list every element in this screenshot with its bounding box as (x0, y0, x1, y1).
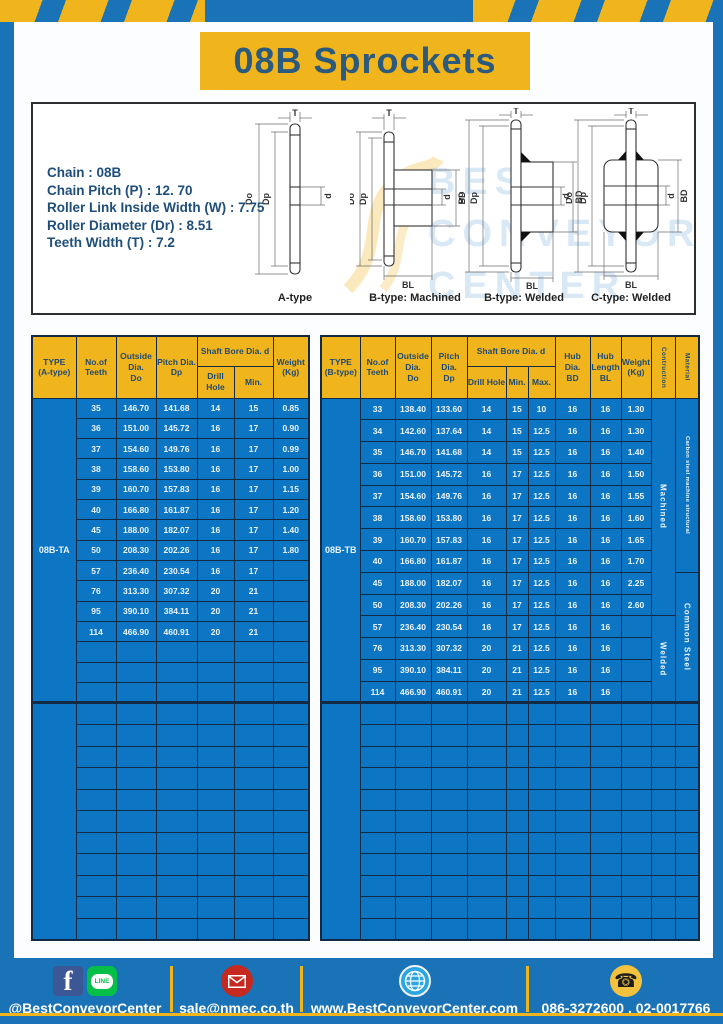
column-header: Contruction (651, 336, 675, 398)
table-cell: 95 (360, 659, 395, 681)
table-cell (156, 703, 197, 725)
table-cell: 21 (234, 581, 273, 601)
table-cell: 36 (360, 463, 395, 485)
table-cell (76, 683, 116, 703)
table-cell (395, 832, 431, 854)
table-cell (651, 918, 675, 940)
table-cell: 20 (197, 581, 234, 601)
table-cell (555, 789, 590, 811)
table-cell (528, 724, 555, 746)
table-cell: 12.5 (528, 572, 555, 594)
table-cell (651, 897, 675, 919)
table-cell (621, 875, 651, 897)
table-cell: 17 (234, 459, 273, 479)
table-cell: 16 (590, 485, 621, 507)
table-cell: 154.60 (395, 485, 431, 507)
table-cell (528, 746, 555, 768)
table-cell (555, 768, 590, 790)
column-header: Shaft Bore Dia. d (467, 336, 555, 366)
table-cell: 384.11 (156, 601, 197, 621)
line-badge: LINE (91, 974, 113, 989)
table-cell: 17 (506, 529, 528, 551)
table-cell: 16 (590, 594, 621, 616)
globe-icon[interactable] (399, 965, 431, 997)
table-cell (273, 601, 309, 621)
table-cell: 16 (467, 507, 506, 529)
table-cell (555, 897, 590, 919)
table-cell (116, 724, 156, 746)
column-header: Shaft Bore Dia. d (197, 336, 273, 366)
table-cell: 38 (76, 459, 116, 479)
table-cell: 16 (197, 520, 234, 540)
table-cell: 20 (467, 681, 506, 703)
table-cell (273, 789, 309, 811)
table-cell (360, 875, 395, 897)
table-cell (197, 811, 234, 833)
table-cell: 230.54 (431, 616, 467, 638)
table-cell (197, 662, 234, 682)
table-cell (621, 724, 651, 746)
table-row: 37154.60149.76161712.516161.55 (321, 485, 699, 507)
table-cell (621, 746, 651, 768)
table-cell (156, 854, 197, 876)
table-cell: 16 (197, 540, 234, 560)
table-cell (156, 662, 197, 682)
table-row (321, 897, 699, 919)
table-cell: 17 (234, 561, 273, 581)
table-cell: 16 (555, 442, 590, 464)
table-cell: 76 (360, 638, 395, 660)
table-cell: 20 (467, 659, 506, 681)
table-cell: 12.5 (528, 659, 555, 681)
table-cell (590, 811, 621, 833)
table-cell (651, 703, 675, 725)
table-cell: 1.55 (621, 485, 651, 507)
table-cell (651, 724, 675, 746)
table-cell: 158.60 (116, 459, 156, 479)
table-cell: 16 (590, 572, 621, 594)
column-header: Hub Length BL (590, 336, 621, 398)
table-cell: 14 (467, 442, 506, 464)
table-cell: 12.5 (528, 485, 555, 507)
table-cell: 17 (234, 520, 273, 540)
table-row (321, 854, 699, 876)
table-cell: 1.30 (621, 398, 651, 420)
table-cell: 16 (590, 550, 621, 572)
table-cell (395, 703, 431, 725)
table-cell: 12.5 (528, 442, 555, 464)
table-cell (590, 854, 621, 876)
table-cell (621, 789, 651, 811)
table-cell (506, 789, 528, 811)
table-cell (116, 642, 156, 662)
table-cell: 16 (590, 420, 621, 442)
table-cell (555, 724, 590, 746)
facebook-icon[interactable]: f (53, 966, 83, 996)
table-cell: 12.5 (528, 529, 555, 551)
table-cell (395, 918, 431, 940)
table-cell: 14 (467, 398, 506, 420)
table-a-type: TYPE (A-type)No.of TeethOutside Dia. DoP… (31, 335, 310, 941)
table-cell (467, 832, 506, 854)
table-cell: 460.91 (156, 622, 197, 642)
diagram-caption: A-type (230, 292, 360, 304)
table-cell: 20 (197, 622, 234, 642)
table-cell (621, 832, 651, 854)
table-cell: 17 (506, 572, 528, 594)
table-cell (528, 789, 555, 811)
table-cell: 390.10 (116, 601, 156, 621)
table-cell (234, 832, 273, 854)
table-cell (360, 768, 395, 790)
phone-icon[interactable]: ☎ (610, 965, 642, 997)
table-row: 34142.60137.64141512.516161.30 (321, 420, 699, 442)
table-cell: 236.40 (116, 561, 156, 581)
table-cell (467, 811, 506, 833)
table-cell: 149.76 (156, 439, 197, 459)
table-cell (555, 811, 590, 833)
catalog-page: 08B Sprockets BEST CONVEYOR CENTER Chain… (14, 22, 713, 958)
svg-text:T: T (386, 108, 392, 118)
table-cell: 0.99 (273, 439, 309, 459)
table-cell (621, 681, 651, 703)
table-cell (528, 918, 555, 940)
table-cell (675, 746, 699, 768)
table-cell: 17 (234, 439, 273, 459)
table-cell (431, 724, 467, 746)
table-cell: 2.25 (621, 572, 651, 594)
table-cell: 20 (197, 601, 234, 621)
column-header: Outside Dia. Do (395, 336, 431, 398)
table-cell (467, 789, 506, 811)
diagram-c-type-welded: T Do Dp d (566, 108, 696, 313)
table-cell: 16 (590, 681, 621, 703)
table-cell (621, 659, 651, 681)
table-cell (555, 746, 590, 768)
table-cell: 182.07 (156, 520, 197, 540)
spec-line: Roller Diameter (Dr) : 8.51 (47, 217, 264, 235)
table-cell (360, 724, 395, 746)
table-cell: 16 (197, 459, 234, 479)
table-cell: 166.80 (116, 500, 156, 520)
table-cell (273, 854, 309, 876)
table-cell: 1.60 (621, 507, 651, 529)
table-cell (651, 832, 675, 854)
table-cell: 16 (555, 463, 590, 485)
table-cell (651, 789, 675, 811)
table-cell: 17 (234, 500, 273, 520)
table-cell: 16 (590, 463, 621, 485)
table-cell: 16 (555, 550, 590, 572)
table-cell (156, 746, 197, 768)
svg-text:BL: BL (526, 281, 538, 290)
table-cell: 188.00 (116, 520, 156, 540)
table-cell (273, 875, 309, 897)
table-cell: 37 (360, 485, 395, 507)
table-cell: 39 (360, 529, 395, 551)
table-cell (675, 832, 699, 854)
table-cell: 12.5 (528, 616, 555, 638)
column-header: Pitch Dia. Dp (431, 336, 467, 398)
table-cell: 17 (506, 485, 528, 507)
table-cell (621, 897, 651, 919)
table-cell: 17 (506, 594, 528, 616)
table-cell (467, 918, 506, 940)
table-cell: 15 (506, 442, 528, 464)
table-cell (76, 746, 116, 768)
table-cell (431, 897, 467, 919)
table-cell: 12.5 (528, 463, 555, 485)
table-cell (197, 897, 234, 919)
table-row: 57236.40230.54161712.51616Welded (321, 616, 699, 638)
table-cell: 21 (234, 601, 273, 621)
table-cell: 137.64 (431, 420, 467, 442)
table-cell (651, 811, 675, 833)
table-cell: 145.72 (156, 418, 197, 438)
table-cell (651, 854, 675, 876)
table-cell (528, 854, 555, 876)
table-row: 45188.00182.07161712.516162.25Common Ste… (321, 572, 699, 594)
table-cell (431, 811, 467, 833)
table-cell (234, 918, 273, 940)
table-cell (197, 683, 234, 703)
chain-specs: Chain : 08B Chain Pitch (P) : 12. 70 Rol… (47, 164, 264, 252)
table-cell (431, 832, 467, 854)
type-cell (32, 703, 76, 940)
table-cell: 460.91 (431, 681, 467, 703)
table-cell (675, 789, 699, 811)
table-cell (197, 832, 234, 854)
table-cell (675, 811, 699, 833)
spec-line: Chain Pitch (P) : 12. 70 (47, 182, 264, 200)
table-cell: 38 (360, 507, 395, 529)
table-cell: 21 (234, 622, 273, 642)
table-cell (467, 703, 506, 725)
table-cell: 160.70 (116, 479, 156, 499)
svg-text:T: T (628, 108, 634, 116)
table-cell (621, 616, 651, 638)
table-cell: 466.90 (116, 622, 156, 642)
spec-line: Chain : 08B (47, 164, 264, 182)
table-cell: 151.00 (395, 463, 431, 485)
table-cell (555, 854, 590, 876)
material-cell: Carbon steel machine structural (675, 398, 699, 572)
column-header: TYPE (A-type) (32, 336, 76, 398)
table-cell (590, 832, 621, 854)
table-cell: 149.76 (431, 485, 467, 507)
table-cell: 16 (555, 659, 590, 681)
table-cell (590, 918, 621, 940)
table-cell (360, 918, 395, 940)
table-row (321, 875, 699, 897)
table-cell: 21 (506, 659, 528, 681)
table-cell (156, 642, 197, 662)
table-cell: 45 (360, 572, 395, 594)
table-cell: 153.80 (156, 459, 197, 479)
table-row (321, 832, 699, 854)
table-cell: 390.10 (395, 659, 431, 681)
material-cell: Common Steel (675, 572, 699, 703)
table-cell: 95 (76, 601, 116, 621)
table-cell: 15 (506, 420, 528, 442)
table-cell (273, 642, 309, 662)
table-cell (116, 703, 156, 725)
table-cell (156, 875, 197, 897)
mail-icon[interactable] (221, 965, 253, 997)
table-cell: 16 (555, 398, 590, 420)
table-cell: 17 (506, 616, 528, 638)
table-cell: 161.87 (156, 500, 197, 520)
table-cell (234, 746, 273, 768)
table-cell: 16 (590, 616, 621, 638)
table-cell (675, 897, 699, 919)
table-cell: 76 (76, 581, 116, 601)
table-cell: 45 (76, 520, 116, 540)
table-cell (116, 875, 156, 897)
svg-text:T: T (513, 108, 519, 116)
table-cell (360, 811, 395, 833)
table-cell (675, 724, 699, 746)
table-cell: 16 (590, 529, 621, 551)
table-cell (116, 854, 156, 876)
svg-text:Do: Do (566, 192, 574, 204)
table-cell: 16 (590, 442, 621, 464)
table-cell: 12.5 (528, 638, 555, 660)
line-icon[interactable]: LINE (87, 966, 117, 996)
table-cell (506, 897, 528, 919)
table-cell (234, 642, 273, 662)
table-cell (467, 768, 506, 790)
table-cell: 158.60 (395, 507, 431, 529)
table-cell (116, 832, 156, 854)
table-cell (76, 789, 116, 811)
table-cell: 188.00 (395, 572, 431, 594)
table-cell (234, 897, 273, 919)
table-cell (116, 746, 156, 768)
table-cell (431, 875, 467, 897)
table-cell (360, 703, 395, 725)
table-cell (506, 832, 528, 854)
table-cell (590, 789, 621, 811)
table-cell: 160.70 (395, 529, 431, 551)
svg-text:Dp: Dp (578, 192, 588, 204)
table-cell (116, 811, 156, 833)
table-cell (621, 811, 651, 833)
column-header: Pitch Dia. Dp (156, 336, 197, 398)
table-cell: 1.30 (621, 420, 651, 442)
table-cell (621, 638, 651, 660)
table-cell: 57 (360, 616, 395, 638)
table-cell (590, 703, 621, 725)
table-cell: 182.07 (431, 572, 467, 594)
table-cell (360, 897, 395, 919)
type-cell: 08B-TB (321, 398, 360, 703)
table-cell: 12.5 (528, 507, 555, 529)
table-cell (590, 875, 621, 897)
table-cell (234, 875, 273, 897)
table-cell (555, 703, 590, 725)
table-cell (156, 683, 197, 703)
table-cell (506, 724, 528, 746)
svg-text:d: d (666, 193, 676, 199)
table-cell (506, 768, 528, 790)
table-cell (76, 703, 116, 725)
table-cell (590, 897, 621, 919)
column-header: Min. (234, 366, 273, 398)
spec-table: TYPE (A-type)No.of TeethOutside Dia. DoP… (31, 335, 310, 941)
table-cell: 145.72 (431, 463, 467, 485)
table-cell: 146.70 (395, 442, 431, 464)
table-cell: 57 (76, 561, 116, 581)
spec-table: TYPE (B-type)No.of TeethOutside Dia. DoP… (320, 335, 700, 941)
footer-accent-line (0, 1013, 723, 1016)
table-cell (156, 724, 197, 746)
table-cell (555, 918, 590, 940)
table-cell: 17 (234, 540, 273, 560)
page-title-banner: 08B Sprockets (200, 32, 530, 90)
table-cell (273, 561, 309, 581)
table-cell: 1.15 (273, 479, 309, 499)
table-cell: 16 (555, 681, 590, 703)
table-cell: 37 (76, 439, 116, 459)
table-cell (76, 768, 116, 790)
table-cell (76, 897, 116, 919)
table-cell (467, 746, 506, 768)
table-cell (431, 703, 467, 725)
table-cell: 16 (555, 594, 590, 616)
table-cell (234, 854, 273, 876)
table-row (321, 703, 699, 725)
column-header: Weight (Kg) (621, 336, 651, 398)
table-cell (273, 662, 309, 682)
table-cell: 141.68 (431, 442, 467, 464)
table-cell (273, 622, 309, 642)
table-cell: 0.85 (273, 398, 309, 418)
table-cell (360, 746, 395, 768)
table-cell: 16 (590, 638, 621, 660)
table-cell (506, 854, 528, 876)
table-cell (431, 746, 467, 768)
table-cell (590, 746, 621, 768)
table-cell: 1.00 (273, 459, 309, 479)
page-title: 08B Sprockets (233, 40, 496, 82)
table-cell (116, 918, 156, 940)
table-cell: 138.40 (395, 398, 431, 420)
table-cell: 16 (555, 638, 590, 660)
table-cell (506, 703, 528, 725)
table-cell (156, 918, 197, 940)
table-cell (76, 854, 116, 876)
table-row: 36151.00145.72161712.516161.50 (321, 463, 699, 485)
table-cell (467, 724, 506, 746)
table-cell (273, 724, 309, 746)
table-cell (360, 832, 395, 854)
table-row: 95390.10384.11202112.51616 (321, 659, 699, 681)
column-header: Min. (506, 366, 528, 398)
table-cell: 1.20 (273, 500, 309, 520)
table-cell (506, 811, 528, 833)
spec-line: Roller Link Inside Width (W) : 7.75 (47, 199, 264, 217)
table-cell: 153.80 (431, 507, 467, 529)
spec-line: Teeth Width (T) : 7.2 (47, 234, 264, 252)
table-cell (555, 875, 590, 897)
table-cell: 142.60 (395, 420, 431, 442)
column-header: Drill Hole (197, 366, 234, 398)
table-cell (395, 811, 431, 833)
table-cell (590, 724, 621, 746)
table-cell: 208.30 (395, 594, 431, 616)
table-cell: 157.83 (431, 529, 467, 551)
